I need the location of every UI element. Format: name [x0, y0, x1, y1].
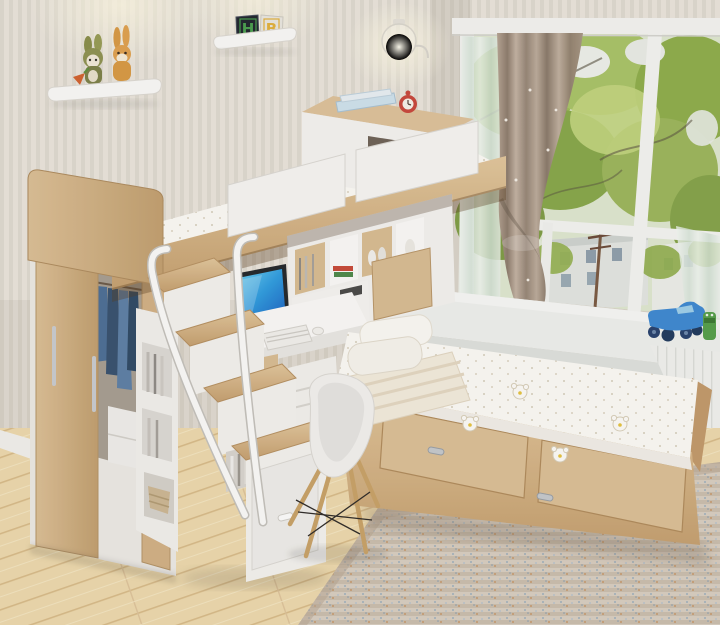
photo-vignette	[0, 0, 720, 625]
bedroom-photo: H B	[0, 0, 720, 625]
